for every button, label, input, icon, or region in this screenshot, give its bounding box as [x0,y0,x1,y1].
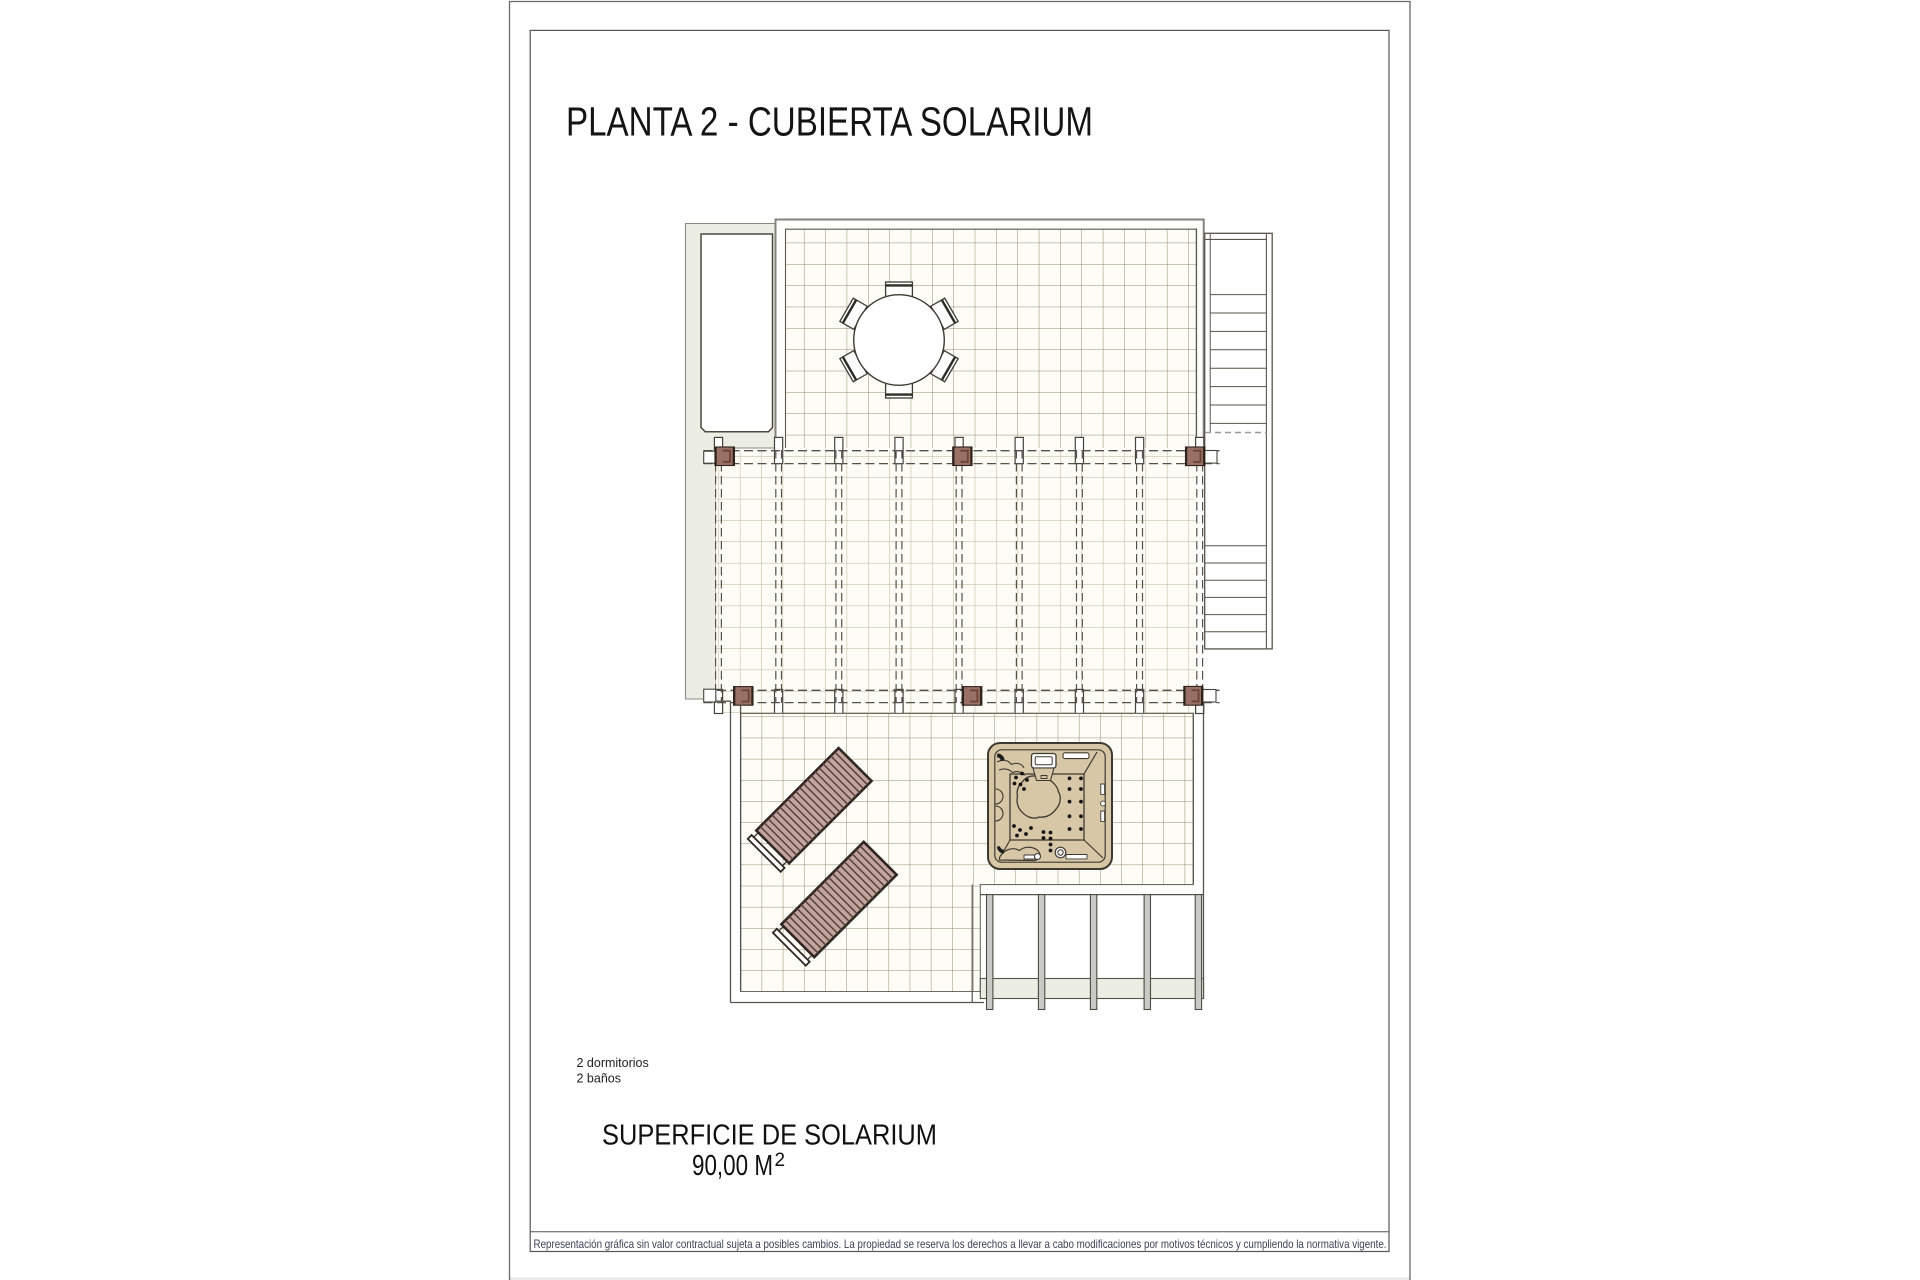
svg-text:SUPERFICIE DE SOLARIUM: SUPERFICIE DE SOLARIUM [602,1120,937,1152]
svg-text:2: 2 [775,1150,786,1171]
svg-text:2 baños: 2 baños [577,1072,621,1086]
svg-text:2 dormitorios: 2 dormitorios [577,1056,649,1070]
svg-text:Representación gráfica sin val: Representación gráfica sin valor contrac… [534,1237,1387,1251]
svg-text:90,00 M: 90,00 M [692,1150,773,1182]
svg-text:PLANTA 2 - CUBIERTA SOLARIUM: PLANTA 2 - CUBIERTA SOLARIUM [566,99,1093,145]
